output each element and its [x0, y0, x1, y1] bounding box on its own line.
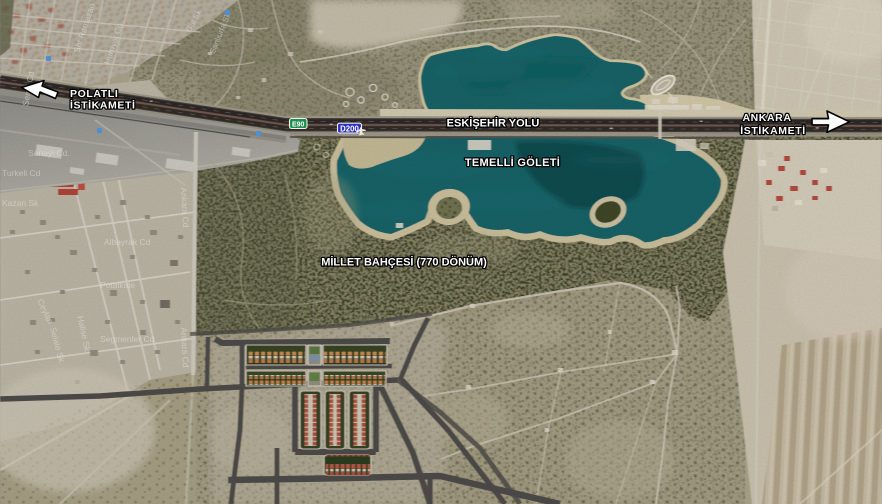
svg-text:Albayrak Cd: Albayrak Cd — [104, 237, 151, 247]
svg-text:Potalkale: Potalkale — [100, 280, 135, 290]
svg-text:Ankara Cd: Ankara Cd — [179, 187, 191, 228]
svg-text:İSTİKAMETİ: İSTİKAMETİ — [740, 124, 806, 137]
svg-text:Sanayi Cd.: Sanayi Cd. — [28, 148, 70, 158]
svg-text:Segmenler Cd: Segmenler Cd — [100, 334, 155, 344]
svg-text:MİLLET BAHÇESİ (770 DÖNÜM): MİLLET BAHÇESİ (770 DÖNÜM) — [321, 256, 487, 269]
svg-text:Turkeli Cd: Turkeli Cd — [2, 168, 41, 178]
svg-text:Ankara Cd: Ankara Cd — [179, 327, 191, 368]
svg-text:TEMELLİ GÖLETİ: TEMELLİ GÖLETİ — [465, 156, 560, 169]
svg-text:POLATLI: POLATLI — [70, 88, 118, 100]
svg-text:E90: E90 — [292, 121, 305, 128]
svg-text:ESKİŞEHİR YOLU: ESKİŞEHİR YOLU — [447, 117, 540, 130]
svg-text:ANKARA: ANKARA — [742, 112, 791, 124]
svg-text:Kazan Sk: Kazan Sk — [2, 198, 39, 208]
svg-text:İSTİKAMETİ: İSTİKAMETİ — [70, 99, 136, 112]
